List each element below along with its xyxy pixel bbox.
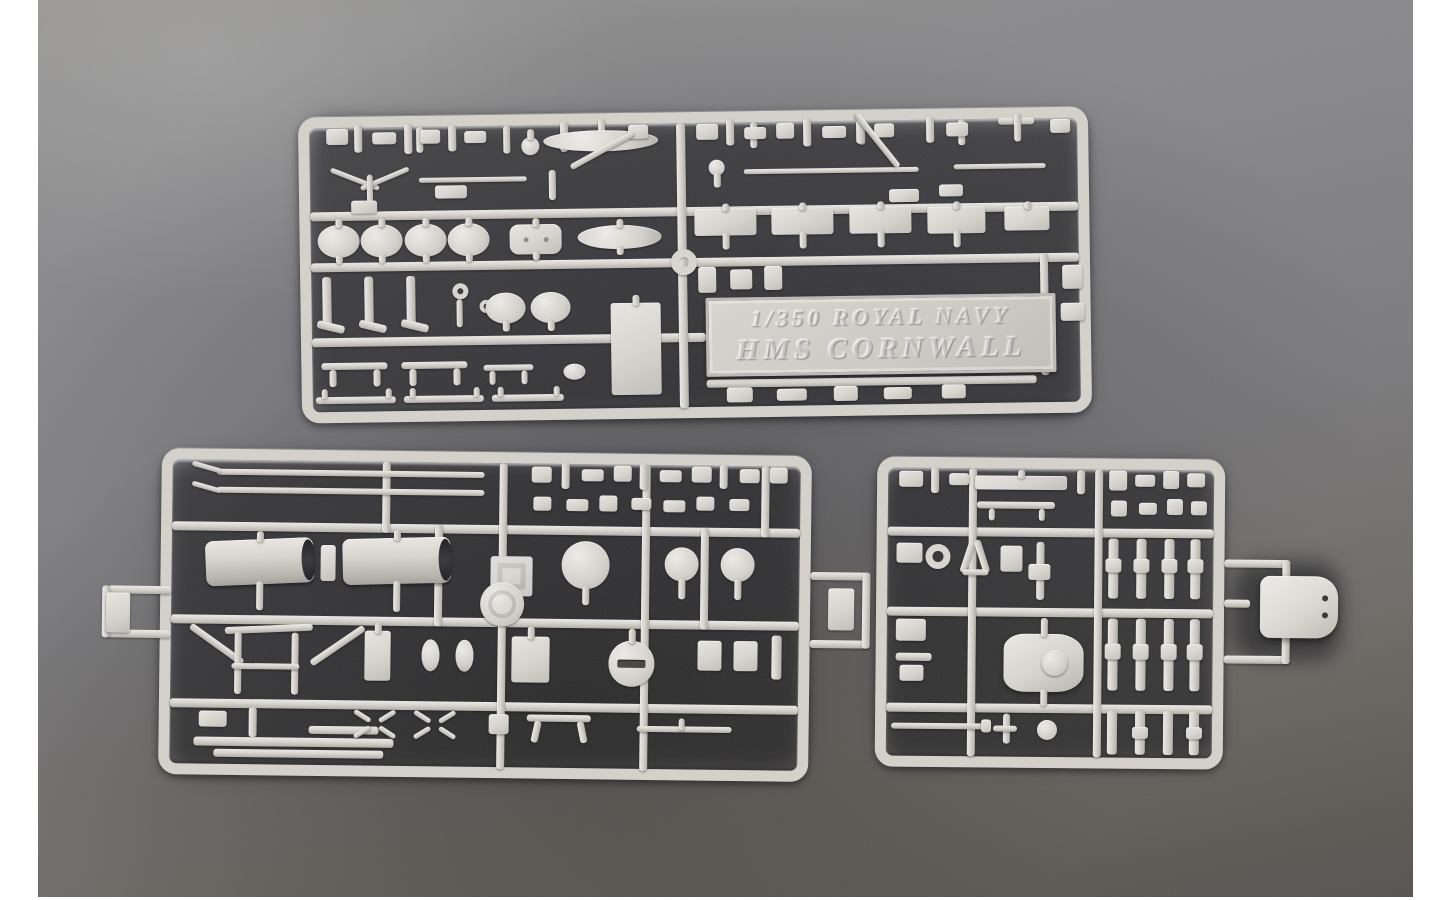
part-stem [256,581,263,610]
part-rect [949,473,969,485]
part-rect [199,711,227,727]
part-bar [962,569,988,575]
part-stem [799,202,806,210]
part-rect [776,123,794,139]
part-rect [489,714,509,734]
part-rect [1161,559,1177,573]
chevron-part [438,709,458,739]
part-rect [896,619,926,641]
chevron-part [378,709,398,739]
part-rect [729,499,749,511]
part-bar [406,276,416,326]
part-rect [1135,475,1155,487]
part-bar [1014,113,1021,141]
part-bar [1039,509,1045,521]
part-bar [489,371,495,385]
part-rect [896,543,922,563]
part-rect [1000,546,1022,572]
part-stem [528,627,535,640]
part-rect [744,127,766,139]
part-rect [435,185,467,198]
part-bar [720,465,728,489]
part-rect [106,592,130,632]
chevron-part [350,708,370,738]
part-stem [877,201,884,209]
part-rect [884,387,912,399]
part-bar [896,653,932,661]
part-stem [375,623,382,634]
part-stem [678,578,685,599]
part-rect [730,269,752,289]
part-rect [1028,564,1050,580]
sprue-runner [862,573,871,649]
part-bar [803,118,811,146]
part-rect [1004,206,1049,231]
part-rect [372,132,396,144]
part-bar [1077,470,1085,494]
chevron-arm [353,709,372,723]
page-margin-right [1413,0,1440,900]
part-stem [423,254,430,263]
part-rect [696,124,718,140]
part-rect [660,470,682,482]
part-bar [554,386,560,396]
part-stem [379,254,386,263]
part-stem [954,230,961,247]
part-rect [1187,473,1205,487]
chevron-arm [438,726,457,740]
chevron-arm [378,725,397,739]
part-bar [316,396,396,404]
part-bar [771,636,782,680]
part-bar [931,467,939,493]
part-padplate [509,224,561,255]
part-stem [532,218,539,227]
part-bar [404,124,412,154]
part-rect [364,631,391,681]
funnel-part [205,537,315,586]
part-rect [599,495,617,511]
part-rect [351,200,377,213]
part-rect [740,469,760,483]
part-rect [1133,559,1149,573]
funnel-part [342,537,451,585]
part-stem [617,246,624,255]
part-rect [727,387,753,402]
part-stem [800,231,807,248]
part-stem [335,219,342,228]
part-rect [777,388,807,400]
part-stem [582,586,589,605]
part-bar [549,170,556,200]
part-stem [466,253,473,262]
part-rect [663,500,685,512]
sprue-runner [503,126,510,154]
sprue-runner [1224,656,1290,665]
part-ring [925,544,950,569]
part-rect [1161,644,1177,660]
part-bar [562,463,570,489]
sprue-top: 1/350 ROYAL NAVYHMS CORNWALL [298,106,1092,423]
part-bar [1107,711,1117,755]
part-stem [723,233,730,250]
part-rect [320,545,335,581]
part-bar [993,726,1017,732]
part-stem [503,321,510,332]
sprue-runner [1224,560,1290,569]
part-rect [828,588,855,630]
part-stem [629,629,636,644]
part-rect [939,184,963,196]
part-bar [231,663,299,670]
chevron-arm [413,726,432,740]
part-stem [257,531,264,542]
rivet-dot [544,237,549,242]
part-bar [474,387,480,397]
chevron-arm [438,710,457,724]
part-bar [456,299,462,327]
part-stem [722,204,729,212]
part-rect [822,126,846,138]
part-bar [409,369,416,386]
part-bar [640,464,648,490]
part-rect [533,497,551,511]
sprue-runner [700,528,709,630]
turret-hole [1322,612,1328,618]
boss-ring [488,590,516,618]
gunhouse-part [1003,634,1084,693]
part-bar [726,119,734,145]
part-rect [698,267,716,293]
part-rect [834,386,858,401]
part-stem [1024,201,1031,209]
scene: 1/350 ROYAL NAVYHMS CORNWALL [0,0,1440,900]
rivet-dot [523,237,528,242]
part-bar [364,276,374,326]
part-rect [1187,559,1203,573]
part-bar [453,368,460,385]
part-rect [464,131,486,143]
part-rect [764,266,782,290]
part-bar [448,125,456,151]
part-stem [1040,689,1047,706]
sprue-bottom-right [875,456,1226,769]
part-bar [989,508,995,520]
part-stem [616,219,623,228]
part-bar [404,395,484,403]
part-stem [465,217,472,226]
part-bar [322,277,332,327]
nameplate-part: 1/350 ROYAL NAVYHMS CORNWALL [705,293,1056,377]
part-rect [1132,727,1148,739]
part-stem [378,218,385,227]
part-stem [533,251,540,260]
part-rect [1139,503,1157,515]
part-rect [511,636,550,682]
part-disc [1037,720,1057,740]
sprue-runner [1224,600,1250,608]
part-stem [336,255,343,264]
part-rect [946,122,968,136]
part-rect [889,189,919,202]
sprue-runner [761,466,770,537]
part-bar [410,388,416,398]
part-rect [697,641,721,671]
part-rect [1109,471,1127,491]
part-stem [527,129,534,140]
part-rect [1191,501,1207,515]
part-bar [354,125,362,153]
part-rect [614,466,632,482]
chevron-part [410,709,430,739]
chevron-arm [413,710,432,724]
part-rect [899,665,923,681]
part-rect [733,641,757,671]
part-rect [1167,499,1183,515]
part-stem [953,201,960,209]
part-bar [1163,711,1173,755]
part-rect [696,497,714,511]
hatch-disc [1042,650,1068,676]
part-stem [632,295,639,306]
part-rect [1163,471,1179,489]
part-bar [926,117,934,143]
slot-cutout [618,660,646,668]
part-rect [532,467,552,483]
part-rect [942,384,966,398]
chevron-arm [353,725,372,739]
part-rect [770,467,788,483]
part-bar [891,723,983,730]
part-rect [981,719,991,732]
part-stem [1041,618,1048,637]
part-bar [498,387,504,397]
part-bar [329,370,336,387]
part-rect [631,498,651,510]
part-rect [1061,303,1085,321]
part-rect [326,129,348,145]
part-stem [548,320,555,331]
turret-part [1260,576,1339,639]
part-stem [878,230,885,247]
part-stem [1018,470,1025,479]
part-rect [1187,644,1203,660]
part-rect [1062,265,1082,289]
part-rect [692,467,712,483]
part-bar [386,388,392,398]
part-bar [322,389,328,399]
part-rect [1111,501,1127,517]
part-bar [521,370,527,384]
part-stem [714,173,721,188]
photo-backdrop: 1/350 ROYAL NAVYHMS CORNWALL [38,0,1413,897]
part-stem [422,218,429,227]
part-rect [420,130,440,144]
part-rect [1186,727,1202,739]
part-rect [1050,119,1070,133]
part-rect [1105,643,1121,659]
part-rect [611,302,662,395]
part-stem [734,579,741,600]
turret-hole [1322,595,1328,601]
part-bar [373,369,380,386]
nameplate-line1: 1/350 ROYAL NAVY [750,303,1011,333]
part-bar [248,707,256,737]
part-stem [394,530,401,541]
part-rect [1105,558,1121,572]
part-rect [899,471,923,487]
part-rect [1133,644,1149,660]
part-stem [393,581,400,612]
part-ring [670,248,696,274]
part-bar [679,718,685,730]
chevron-arm [378,710,397,724]
sprue-bottom-left [158,448,812,782]
part-rect [566,499,588,511]
page-margin-left [0,0,38,900]
nameplate-line2: HMS CORNWALL [736,330,1027,367]
part-bar [977,501,1055,509]
part-rect [582,469,604,481]
